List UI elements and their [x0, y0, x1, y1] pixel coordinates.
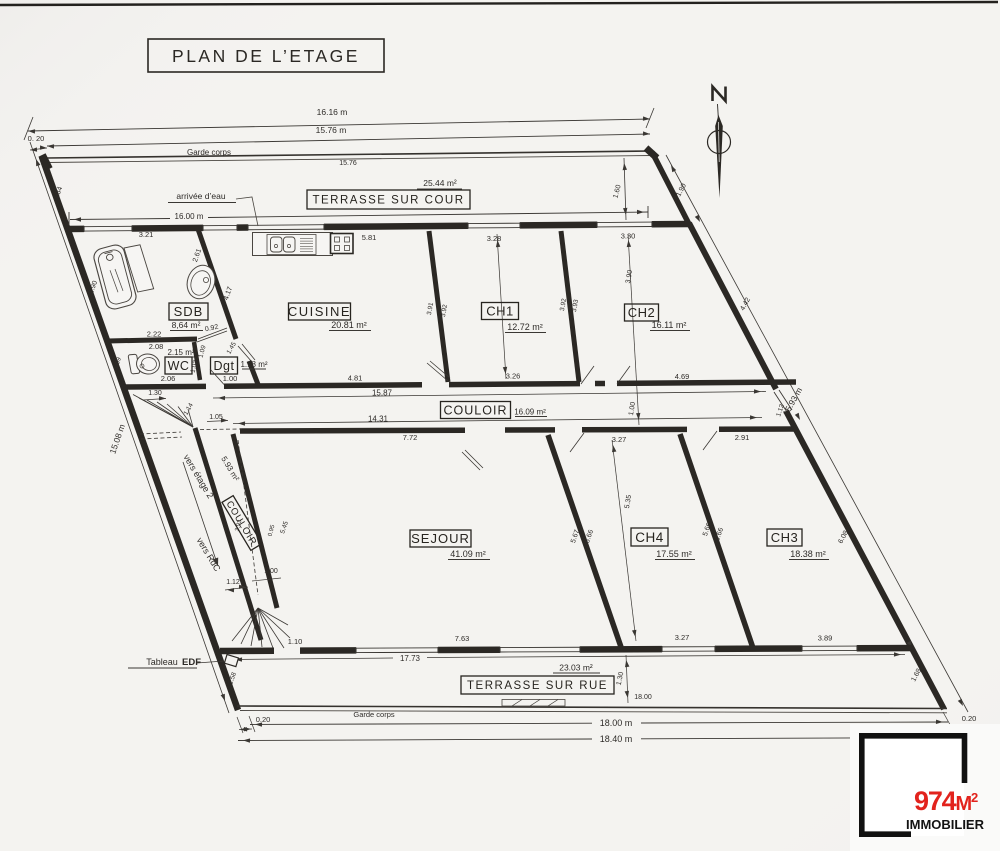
- svg-text:25.44 m²: 25.44 m²: [423, 178, 457, 188]
- svg-text:1.12: 1.12: [226, 579, 240, 586]
- svg-text:12.72 m²: 12.72 m²: [507, 322, 543, 332]
- svg-text:15.76 m: 15.76 m: [316, 125, 347, 135]
- svg-text:3.28: 3.28: [487, 234, 502, 243]
- svg-text:18.00: 18.00: [634, 694, 652, 701]
- svg-text:CUISINE: CUISINE: [288, 304, 351, 319]
- svg-text:2.06: 2.06: [161, 374, 176, 383]
- svg-text:3.27: 3.27: [675, 633, 690, 642]
- svg-text:CH3: CH3: [771, 530, 799, 545]
- svg-text:COULOIR: COULOIR: [444, 404, 508, 418]
- svg-text:17.55 m²: 17.55 m²: [656, 549, 692, 559]
- svg-text:2.22: 2.22: [147, 330, 162, 339]
- svg-text:4.69: 4.69: [675, 372, 690, 381]
- svg-text:CH4: CH4: [635, 530, 664, 545]
- svg-text:8,64 m²: 8,64 m²: [172, 320, 201, 330]
- svg-text:0. 20: 0. 20: [28, 134, 45, 143]
- svg-text:3.21: 3.21: [139, 230, 154, 239]
- svg-text:41.09 m²: 41.09 m²: [450, 549, 486, 559]
- svg-text:Garde corps: Garde corps: [353, 710, 395, 719]
- svg-text:Dgt: Dgt: [214, 359, 235, 373]
- svg-text:TERRASSE SUR RUE: TERRASSE SUR RUE: [467, 680, 608, 692]
- svg-text:16.09 m²: 16.09 m²: [514, 408, 546, 417]
- svg-text:15.87: 15.87: [372, 389, 393, 398]
- svg-text:WC: WC: [168, 359, 190, 373]
- svg-text:15.76: 15.76: [339, 160, 357, 167]
- svg-text:2.08: 2.08: [149, 342, 164, 351]
- svg-text:18.38 m²: 18.38 m²: [790, 549, 826, 559]
- svg-text:20.81 m²: 20.81 m²: [331, 320, 367, 330]
- svg-text:16.11 m²: 16.11 m²: [652, 320, 687, 330]
- svg-text:IMMOBILIER: IMMOBILIER: [906, 817, 985, 832]
- svg-text:EDF: EDF: [182, 657, 201, 668]
- svg-text:3.89: 3.89: [818, 634, 833, 643]
- svg-text:4.81: 4.81: [348, 374, 363, 383]
- svg-text:7.63: 7.63: [455, 634, 470, 643]
- svg-text:1.00: 1.00: [223, 374, 238, 383]
- svg-text:CH2: CH2: [628, 305, 656, 320]
- svg-text:5.81: 5.81: [362, 233, 377, 242]
- svg-text:Garde corps: Garde corps: [187, 148, 231, 157]
- svg-text:17.73: 17.73: [400, 654, 421, 663]
- svg-text:0.20: 0.20: [256, 715, 271, 724]
- svg-text:3.26: 3.26: [506, 372, 521, 381]
- svg-text:0.20: 0.20: [962, 714, 977, 723]
- svg-text:1.00: 1.00: [264, 568, 278, 575]
- svg-text:arrivée d’eau: arrivée d’eau: [176, 191, 225, 201]
- svg-text:3.30: 3.30: [621, 232, 636, 241]
- svg-text:1.30: 1.30: [148, 390, 162, 397]
- svg-text:23.03 m²: 23.03 m²: [559, 663, 593, 673]
- svg-text:2.91: 2.91: [735, 433, 750, 442]
- svg-text:18.40 m: 18.40 m: [600, 734, 633, 744]
- svg-text:1.10: 1.10: [288, 637, 303, 646]
- svg-text:CH1: CH1: [486, 304, 514, 319]
- svg-text:16.16 m: 16.16 m: [317, 107, 348, 117]
- svg-text:1.18 m²: 1.18 m²: [240, 360, 267, 369]
- svg-text:16.00 m: 16.00 m: [175, 212, 204, 221]
- svg-text:SEJOUR: SEJOUR: [411, 531, 470, 546]
- svg-text:PLAN DE L’ETAGE: PLAN DE L’ETAGE: [172, 46, 360, 66]
- svg-text:2.15 m²: 2.15 m²: [167, 348, 194, 357]
- svg-text:14.31: 14.31: [368, 415, 389, 424]
- svg-text:3.27: 3.27: [612, 435, 627, 444]
- svg-text:TERRASSE SUR COUR: TERRASSE SUR COUR: [312, 195, 464, 207]
- svg-text:1.05: 1.05: [209, 414, 223, 421]
- svg-text:Tableau: Tableau: [146, 657, 178, 667]
- svg-text:SDB: SDB: [174, 304, 204, 319]
- svg-text:18.00 m: 18.00 m: [600, 718, 633, 728]
- svg-text:7.72: 7.72: [403, 433, 418, 442]
